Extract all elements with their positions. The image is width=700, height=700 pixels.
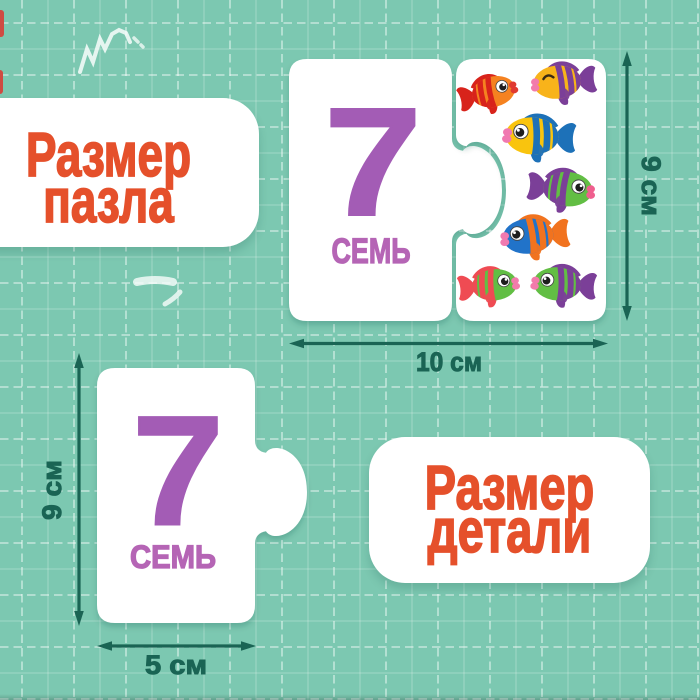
svg-text:9 см: 9 см <box>636 156 666 216</box>
svg-text:7: 7 <box>132 385 224 559</box>
svg-text:10 см: 10 см <box>416 347 482 376</box>
svg-text:7: 7 <box>324 76 422 248</box>
svg-text:5 см: 5 см <box>145 650 207 678</box>
svg-text:СЕМЬ: СЕМЬ <box>332 232 411 271</box>
svg-text:СЕМЬ: СЕМЬ <box>130 539 216 575</box>
svg-text:9 см: 9 см <box>40 460 67 520</box>
